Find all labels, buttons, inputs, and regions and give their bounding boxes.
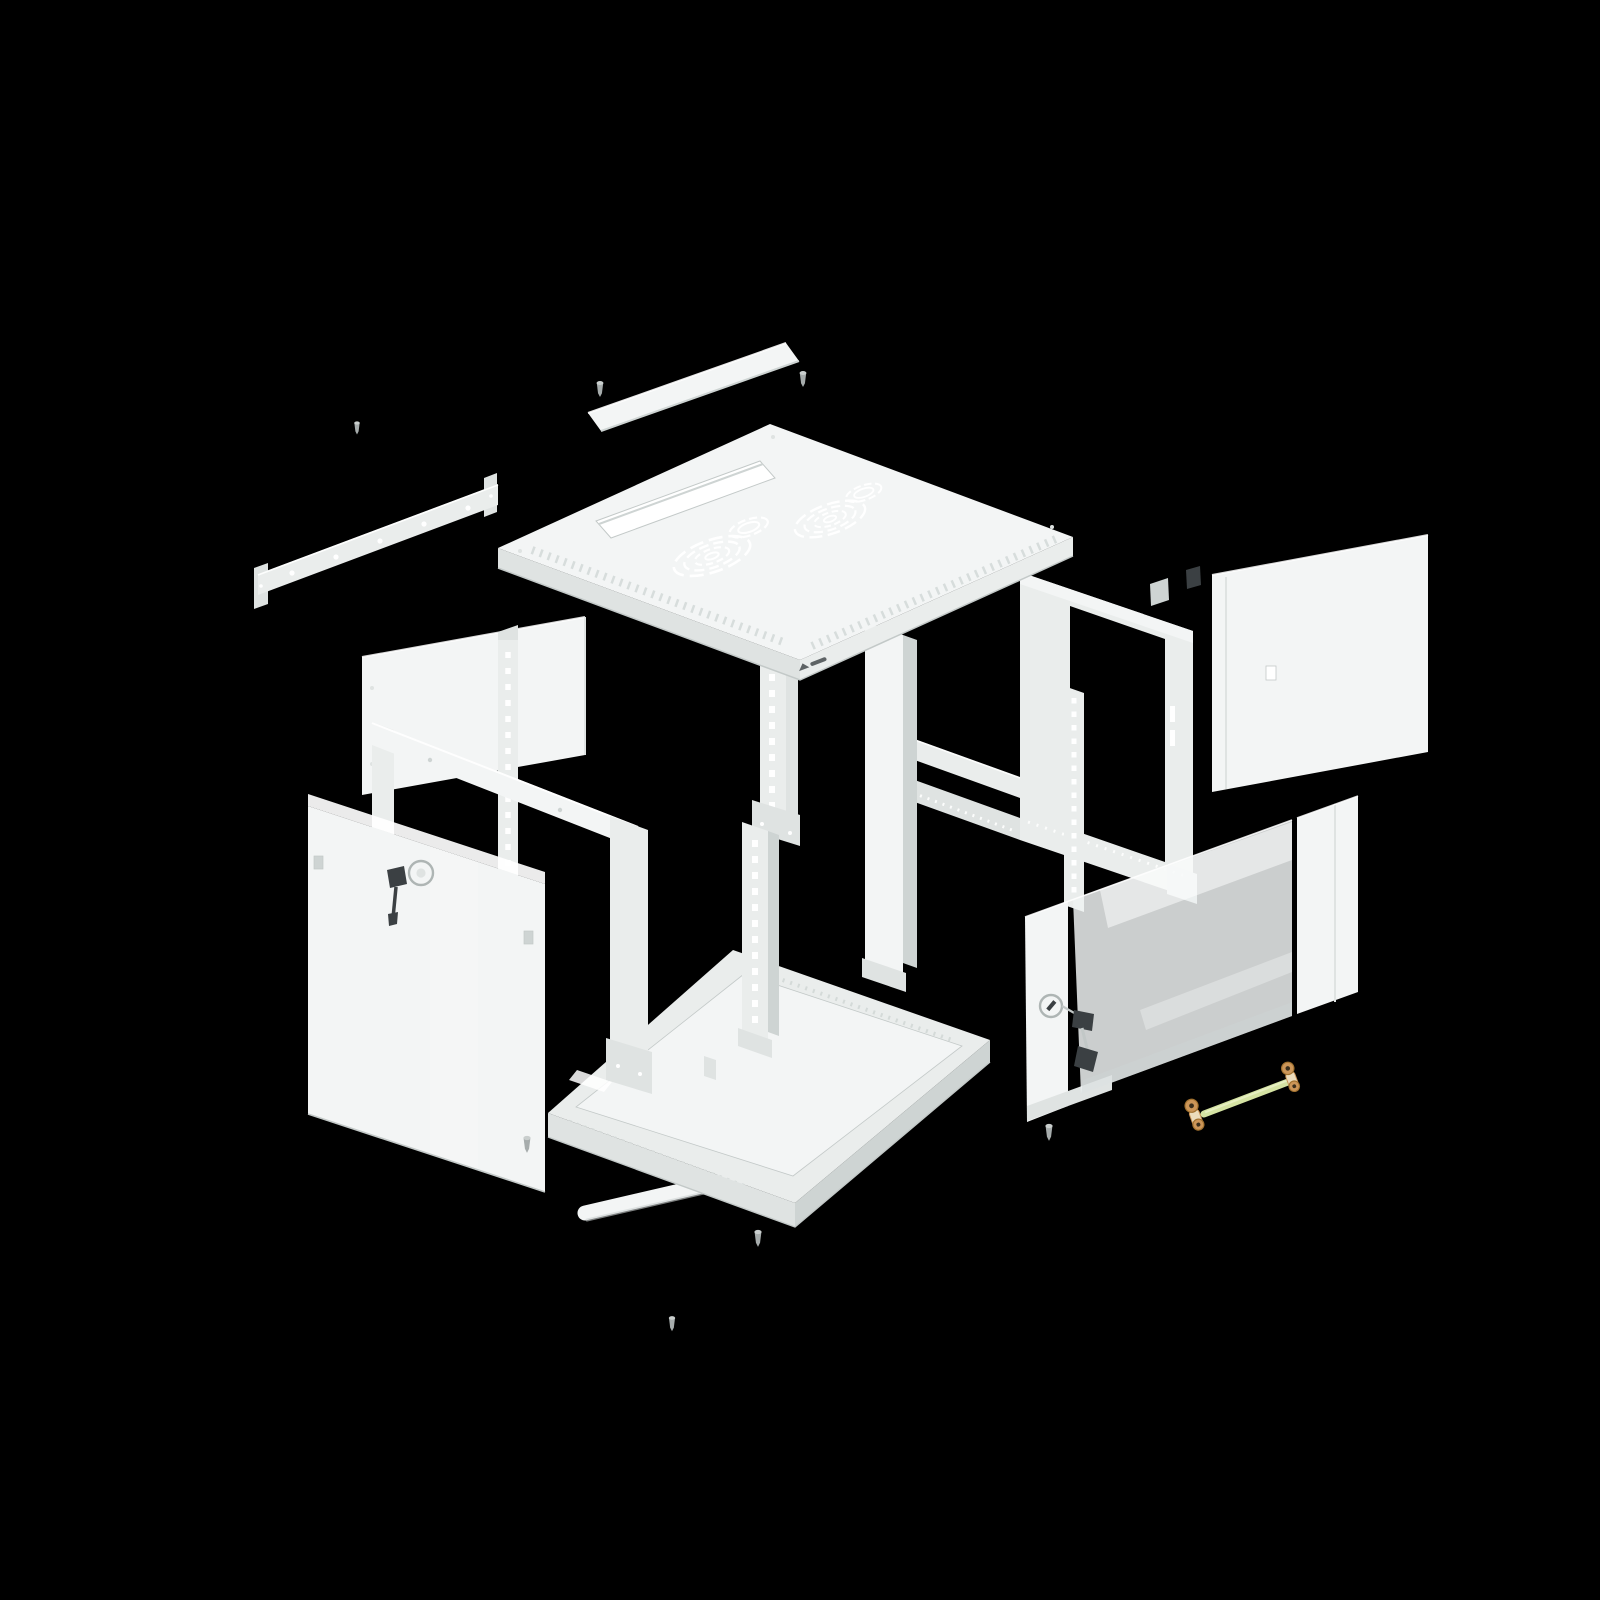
exploded-view-canvas bbox=[0, 0, 1600, 1600]
beam-hole bbox=[428, 758, 432, 762]
right-side-panel-face bbox=[1212, 535, 1428, 792]
frame-slot bbox=[1170, 730, 1175, 746]
panel-hole bbox=[1050, 525, 1054, 529]
mounting-rail-front-lower bbox=[738, 822, 779, 1058]
post-side-face bbox=[903, 635, 917, 968]
frame-slot bbox=[1170, 706, 1175, 722]
black-background bbox=[0, 0, 1600, 1600]
rail-side-face bbox=[786, 662, 798, 830]
mounting-rail-right bbox=[1064, 686, 1084, 912]
product-image-stage bbox=[0, 0, 1600, 1600]
door-hinge-latch bbox=[314, 856, 323, 869]
post-front-face bbox=[865, 622, 903, 975]
tray-bracket bbox=[704, 1056, 716, 1080]
door-lock-left bbox=[409, 861, 433, 885]
panel-latch-dark bbox=[1186, 566, 1201, 589]
door-sheen bbox=[430, 846, 478, 1170]
rear-corner-post bbox=[862, 622, 917, 992]
foot-hole bbox=[616, 1064, 620, 1068]
panel-hole bbox=[370, 686, 374, 690]
rail-body bbox=[742, 822, 768, 1040]
rail-side-face bbox=[768, 831, 779, 1036]
panel-hole bbox=[518, 549, 522, 553]
glass-door-right-member bbox=[1297, 796, 1358, 1014]
bracket-hole bbox=[760, 822, 764, 826]
door-hinge-latch bbox=[524, 931, 533, 944]
beam-hole bbox=[558, 808, 562, 812]
door-lock-right bbox=[1040, 995, 1062, 1017]
foot-hole bbox=[638, 1072, 642, 1076]
panel-hole bbox=[771, 435, 775, 439]
bracket-hole bbox=[788, 831, 792, 835]
panel-latch-slider bbox=[1266, 666, 1276, 680]
